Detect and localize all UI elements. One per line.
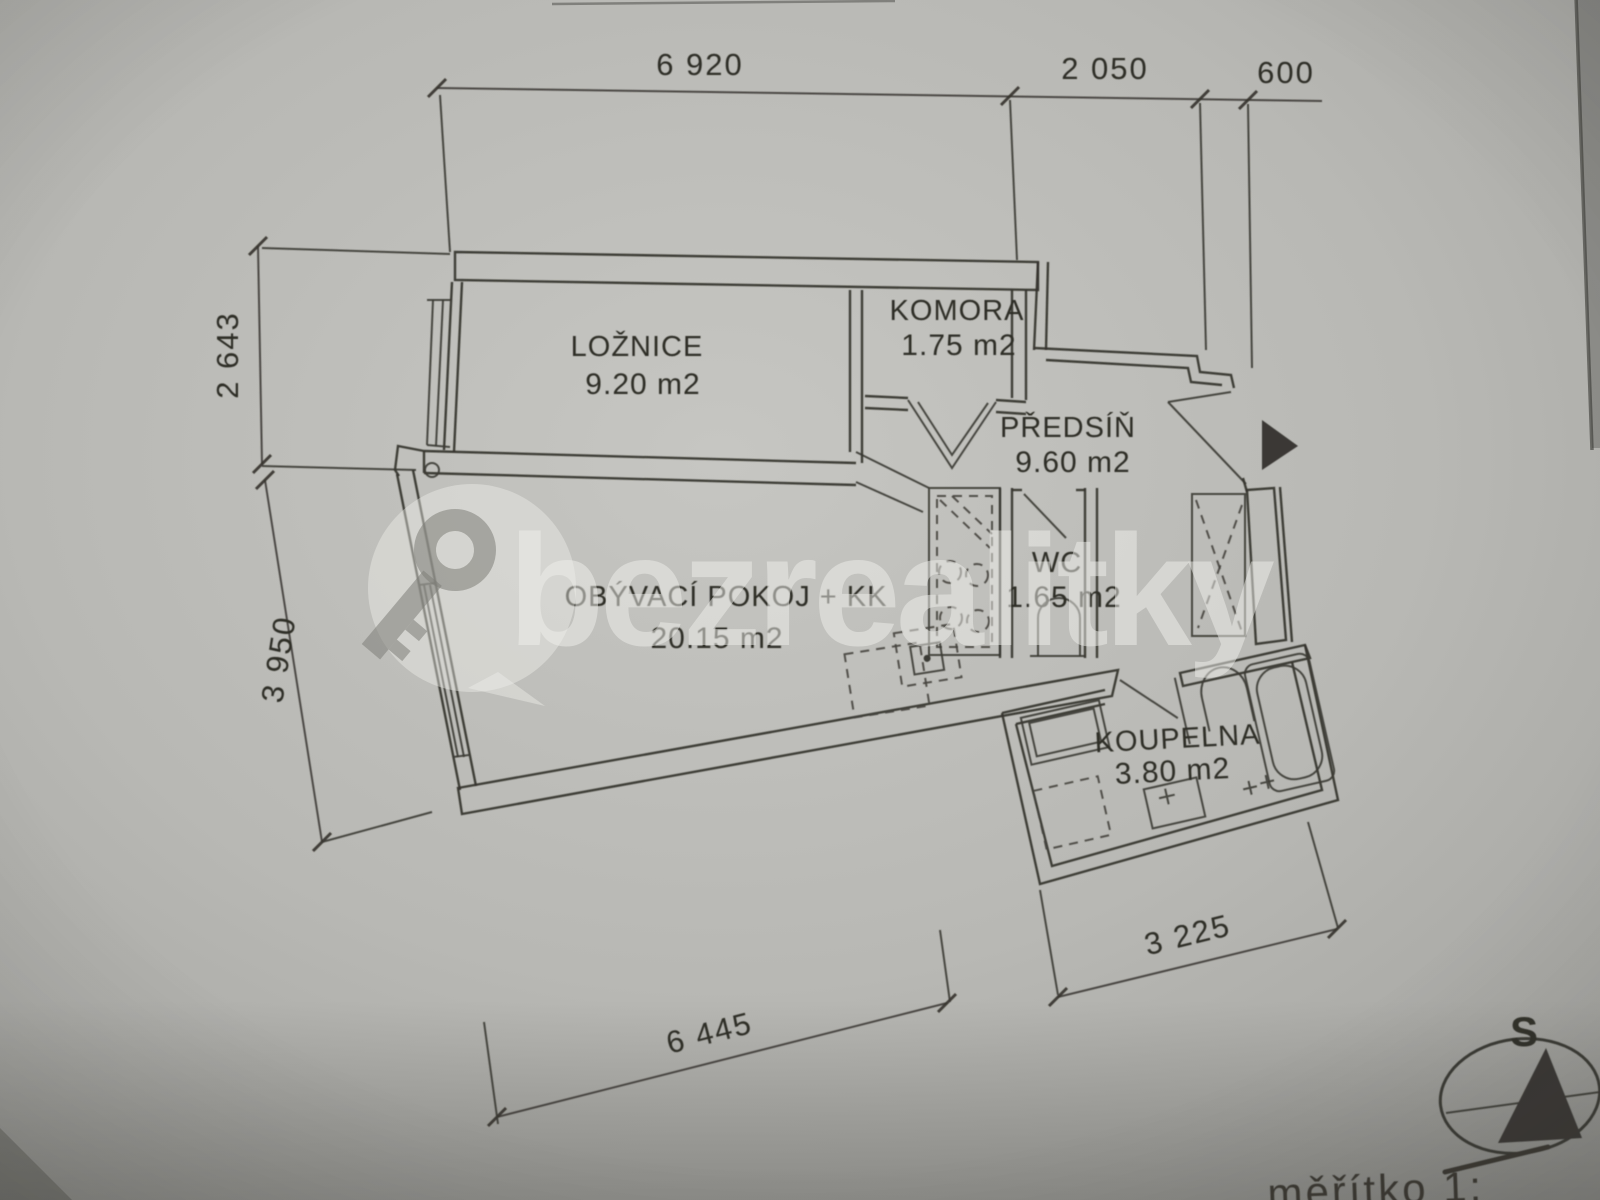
dim-top-2: 2 050	[1061, 51, 1149, 86]
dim-left-1: 2 643	[210, 311, 245, 399]
watermark-brand: bezrealitky	[508, 503, 1275, 679]
north-label: S	[1510, 1008, 1538, 1055]
dim-top-3: 600	[1257, 55, 1315, 90]
room-area-predsin: 9.60 m2	[1015, 446, 1130, 479]
room-label-predsin: PŘEDSÍŇ	[1000, 411, 1136, 444]
room-label-komora: KOMORA	[890, 295, 1025, 327]
room-label-loznice: LOŽNICE	[571, 330, 704, 363]
room-area-komora: 1.75 m2	[901, 329, 1016, 362]
floor-plan-photo: 6 920 2 050 600 2 643 3 950 6 445 3 225	[0, 0, 1600, 1200]
room-area-koupelna: 3.80 m2	[1114, 752, 1231, 791]
dim-top-1: 6 920	[656, 47, 744, 82]
room-area-loznice: 9.20 m2	[585, 368, 700, 401]
watermark: bezrealitky	[347, 484, 1275, 706]
